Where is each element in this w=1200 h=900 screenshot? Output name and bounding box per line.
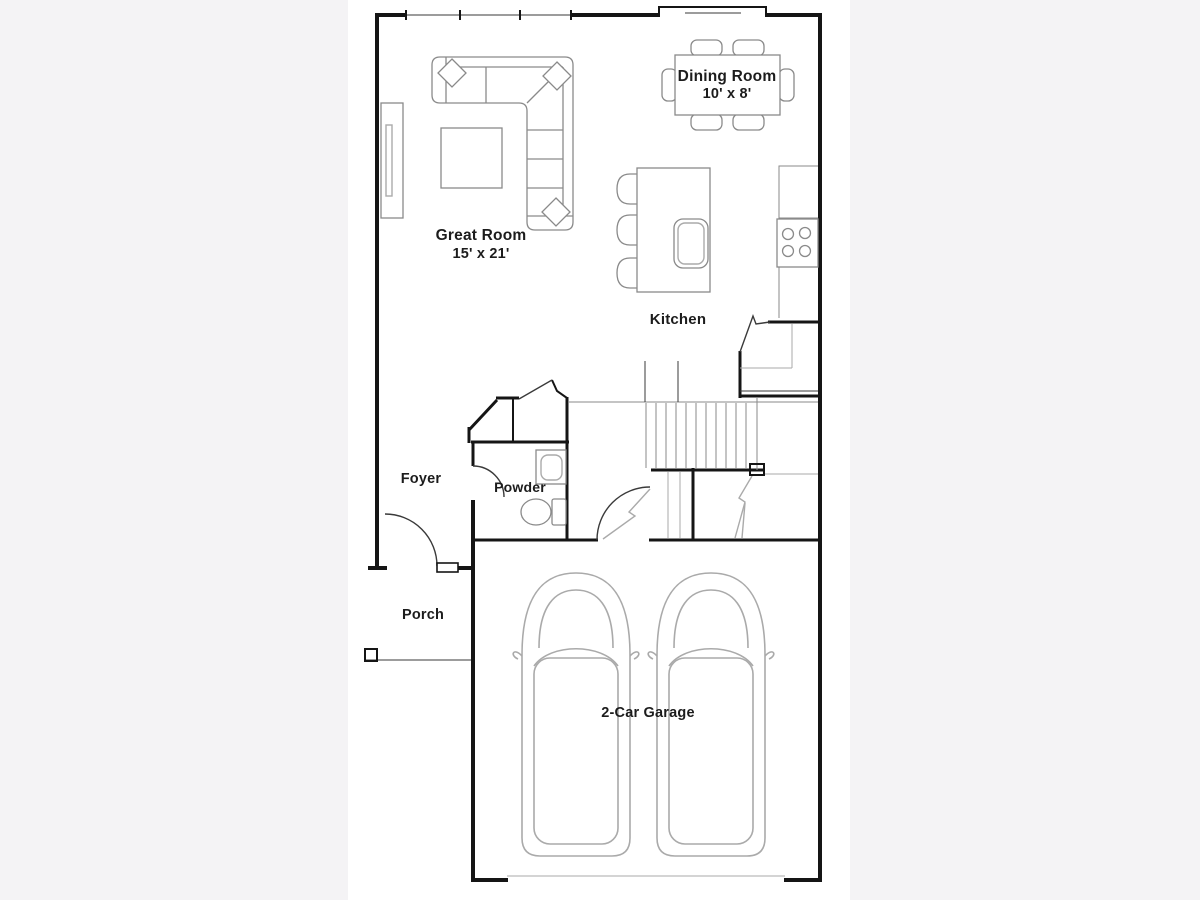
room-label-powder: Powder	[470, 479, 570, 495]
dining-chair	[691, 114, 722, 130]
room-label-foyer: Foyer	[374, 471, 468, 488]
floor-plan-drawing	[0, 0, 1200, 900]
room-label-porch: Porch	[376, 607, 470, 624]
plan-canvas	[348, 0, 850, 900]
room-label-garage: 2-Car Garage	[570, 705, 726, 722]
burner	[800, 246, 811, 257]
dining-chair	[733, 40, 764, 56]
room-label-great: Great Room	[410, 227, 552, 245]
burner	[783, 229, 794, 240]
room-dimensions-dining: 10' x 8'	[657, 86, 797, 103]
dining-chair	[691, 40, 722, 56]
floor-plan-page: Dining Room 10' x 8' Great Room 15' x 21…	[0, 0, 1200, 900]
room-label-kitchen: Kitchen	[612, 311, 744, 328]
burner	[783, 246, 794, 257]
burner	[800, 228, 811, 239]
room-label-dining: Dining Room	[657, 68, 797, 86]
dining-chair	[733, 114, 764, 130]
room-dimensions-great: 15' x 21'	[410, 246, 552, 263]
